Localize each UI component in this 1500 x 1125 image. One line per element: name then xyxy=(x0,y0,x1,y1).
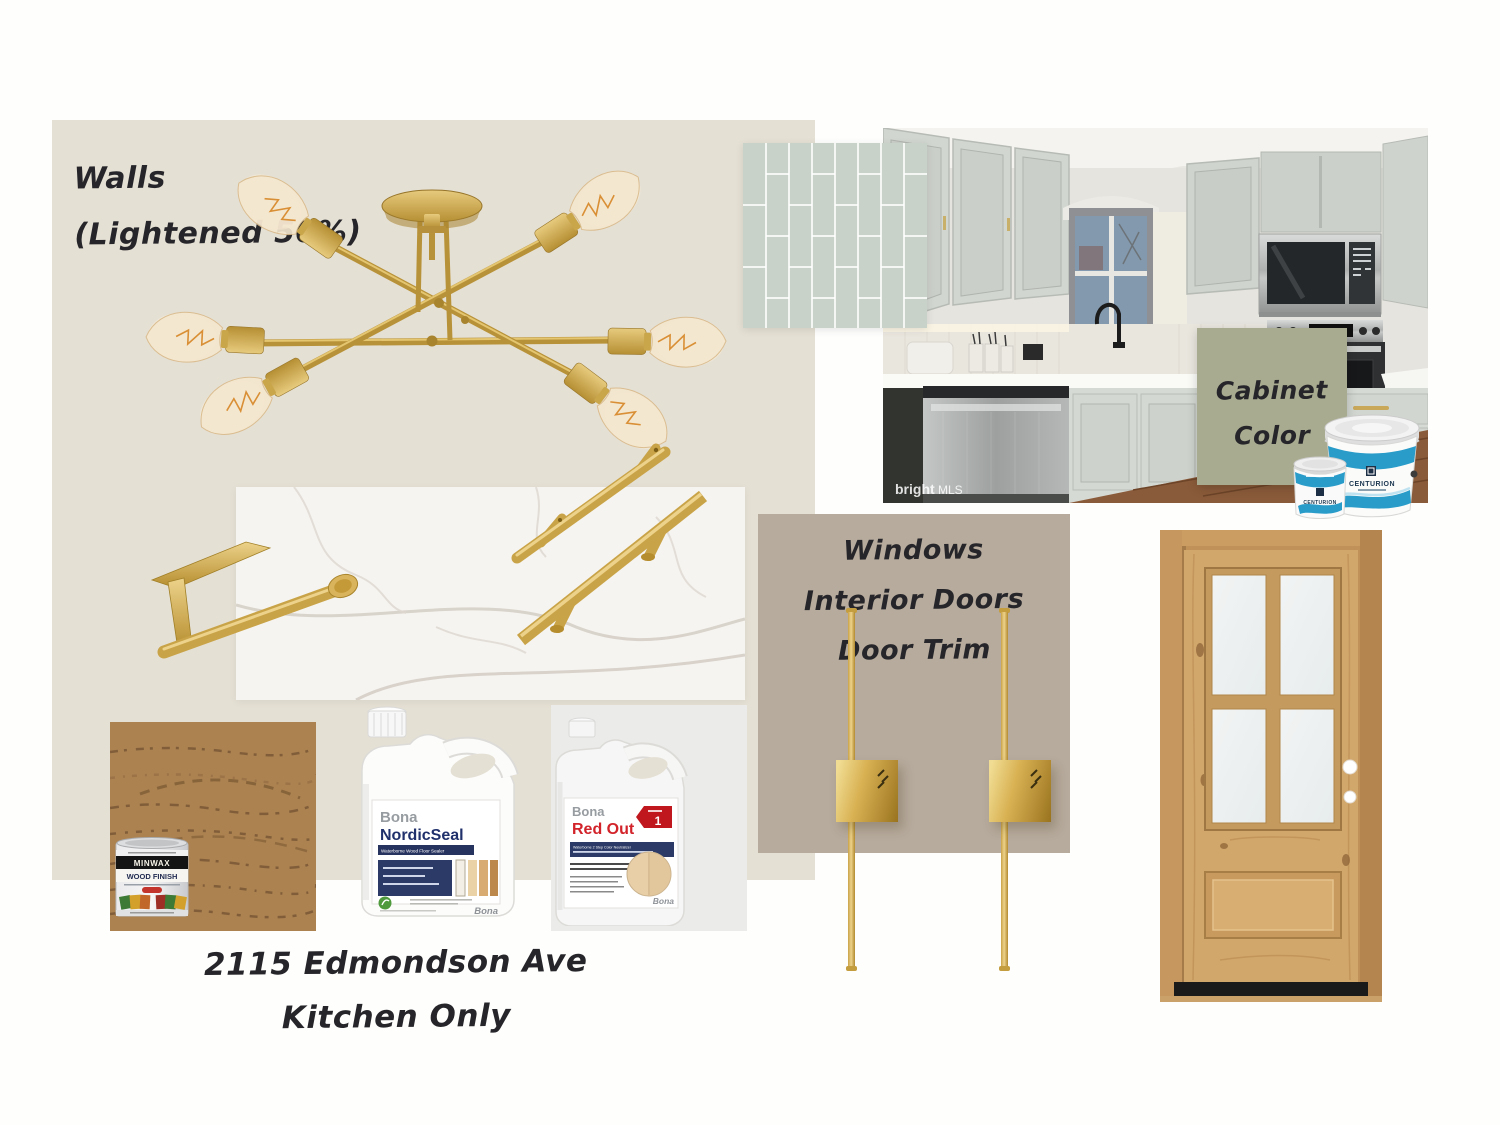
wall-sconce-left xyxy=(826,610,922,972)
paint-can-small: CENTURION xyxy=(1294,457,1346,519)
svg-text:Bona: Bona xyxy=(380,809,418,826)
svg-text:NordicSeal: NordicSeal xyxy=(380,827,464,844)
svg-text:Bona: Bona xyxy=(474,906,498,917)
bona-redout-jug: Bona Red Out 1 Waterborne 2 Step Color N… xyxy=(548,716,696,926)
sputnik-chandelier-image xyxy=(110,160,750,450)
door-glass-grid xyxy=(1205,568,1341,830)
svg-text:bright: bright xyxy=(895,481,935,497)
photo-watermark: bright MLS xyxy=(895,481,963,497)
bona-nordicseal-jug: Bona NordicSeal Waterborne Wood Floor Se… xyxy=(352,704,524,920)
tile-swatch xyxy=(743,143,927,328)
minwax-can: MINWAX WOOD FINISH xyxy=(114,836,190,918)
chandelier-bulb xyxy=(226,161,351,270)
chandelier-bulb xyxy=(145,310,265,366)
door-threshold xyxy=(1174,982,1368,996)
trim-label-line1: Windows xyxy=(767,524,1060,577)
chandelier-canopy xyxy=(382,190,482,233)
svg-text:1: 1 xyxy=(655,814,662,828)
sconce-cap xyxy=(846,966,857,971)
chandelier-bulb xyxy=(527,160,653,264)
moodboard: Walls (Lightened 50%) xyxy=(0,0,1500,1125)
sconce-mount xyxy=(836,760,898,822)
svg-text:MLS: MLS xyxy=(938,483,963,497)
eco-badge-icon xyxy=(379,897,392,910)
microwave xyxy=(1259,234,1381,317)
door-panel xyxy=(1205,872,1341,938)
cabinet-pull-bottom xyxy=(521,494,703,640)
door-bore-hole xyxy=(1344,791,1356,803)
project-title-line1: 2115 Edmondson Ave xyxy=(195,934,596,992)
project-title-line2: Kitchen Only xyxy=(196,988,597,1046)
project-title: 2115 Edmondson Ave Kitchen Only xyxy=(195,934,596,1046)
wall-sconce-right xyxy=(979,610,1075,972)
svg-text:Bona: Bona xyxy=(653,896,675,906)
door-bore-hole xyxy=(1343,760,1357,774)
svg-text:WOOD FINISH: WOOD FINISH xyxy=(127,872,178,881)
nordicseal-label: Bona NordicSeal Waterborne Wood Floor Se… xyxy=(372,800,500,917)
svg-text:Waterborne 2 Step Color Neutra: Waterborne 2 Step Color Neutralizer xyxy=(573,846,632,850)
sconce-cap xyxy=(999,966,1010,971)
lit-cabinet-face xyxy=(1153,212,1187,330)
redout-label: Bona Red Out 1 Waterborne 2 Step Color N… xyxy=(564,798,678,908)
brass-hardware-group xyxy=(140,430,760,720)
chandelier-bulb xyxy=(608,316,727,368)
sconce-mount xyxy=(989,760,1051,822)
svg-text:MINWAX: MINWAX xyxy=(134,859,171,868)
wood-door xyxy=(1160,530,1382,1010)
paper-towel-holder xyxy=(152,542,361,652)
svg-text:CENTURION: CENTURION xyxy=(1349,481,1395,488)
svg-text:Red Out: Red Out xyxy=(572,821,635,838)
svg-text:Bona: Bona xyxy=(572,804,605,819)
paint-buckets: CENTURION CENTURION xyxy=(1288,402,1424,522)
svg-text:Waterborne Wood Floor Sealer: Waterborne Wood Floor Sealer xyxy=(381,849,445,854)
